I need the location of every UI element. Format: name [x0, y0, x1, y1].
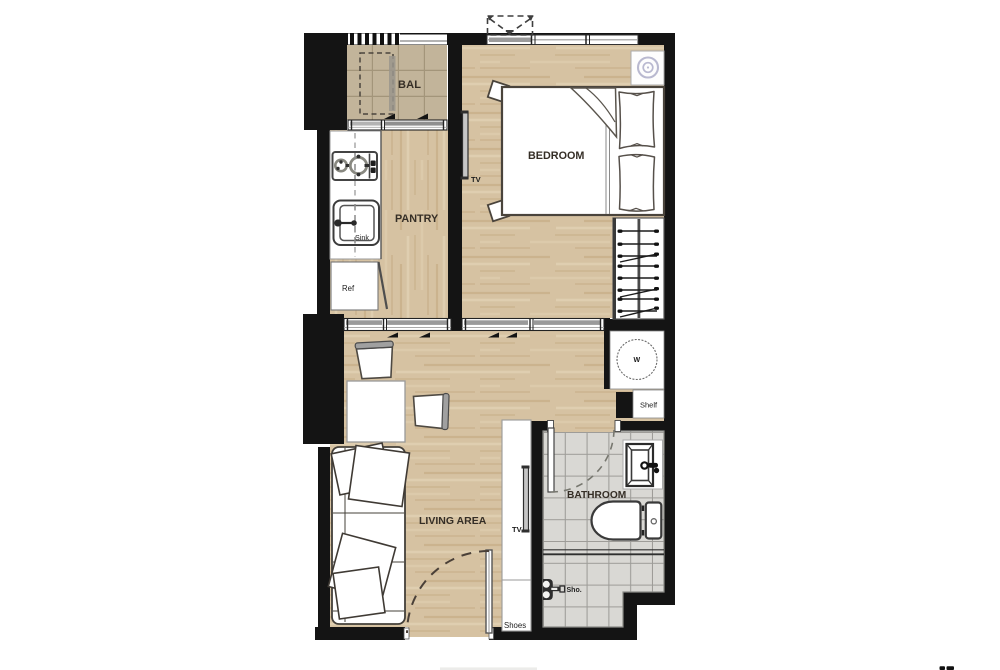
svg-text:Sho.: Sho.: [567, 587, 582, 594]
svg-text:TV: TV: [471, 175, 481, 184]
svg-text:BATHROOM: BATHROOM: [567, 490, 626, 501]
svg-text:LIVING AREA: LIVING AREA: [419, 515, 487, 527]
svg-text:PANTRY: PANTRY: [395, 213, 439, 225]
svg-text:BEDROOM: BEDROOM: [528, 150, 584, 162]
svg-text:Ref: Ref: [342, 284, 355, 293]
svg-text:Shelf: Shelf: [640, 401, 658, 410]
svg-text:Sink: Sink: [355, 233, 369, 242]
svg-text:TV: TV: [512, 525, 522, 534]
svg-text:Shoes: Shoes: [504, 621, 526, 630]
svg-text:W: W: [634, 357, 641, 364]
svg-text:BAL: BAL: [398, 79, 421, 91]
